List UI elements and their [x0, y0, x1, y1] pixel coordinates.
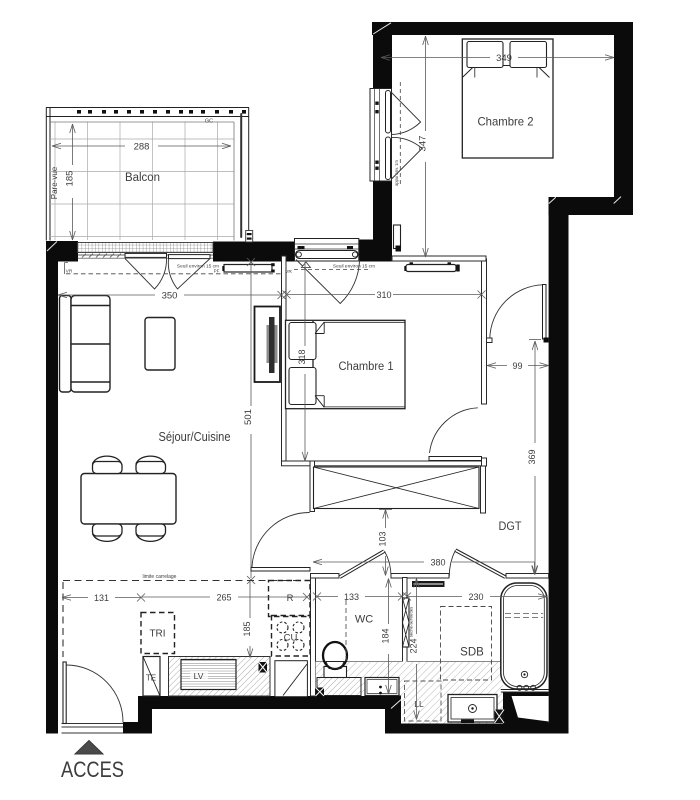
svg-text:sèche-serviettes: sèche-serviettes [409, 607, 414, 638]
svg-text:184: 184 [381, 628, 391, 643]
svg-text:LL: LL [414, 699, 424, 709]
svg-text:369: 369 [527, 449, 537, 464]
svg-text:SDB: SDB [460, 647, 484, 659]
svg-text:GC: GC [205, 119, 213, 125]
svg-text:347: 347 [418, 136, 429, 152]
svg-text:Séjour/Cuisine: Séjour/Cuisine [159, 429, 231, 444]
svg-text:99: 99 [512, 361, 522, 371]
svg-text:224: 224 [409, 638, 419, 653]
svg-text:CU: CU [284, 633, 298, 644]
svg-text:103: 103 [378, 531, 388, 546]
svg-text:PF: PF [214, 269, 220, 274]
svg-text:TE: TE [146, 674, 156, 683]
svg-text:185: 185 [242, 621, 252, 636]
svg-text:ACCES: ACCES [61, 757, 124, 782]
svg-text:318: 318 [297, 349, 307, 364]
svg-text:DGT: DGT [499, 521, 522, 533]
svg-text:Pare-vue: Pare-vue [50, 166, 59, 199]
svg-text:TRI: TRI [149, 629, 165, 640]
svg-text:WC: WC [355, 614, 373, 626]
svg-text:Chambre 2: Chambre 2 [478, 115, 534, 129]
svg-text:230: 230 [468, 592, 483, 602]
svg-text:310: 310 [376, 290, 391, 300]
svg-text:349: 349 [496, 53, 512, 64]
svg-text:VR: VR [285, 269, 292, 275]
svg-text:350: 350 [162, 291, 178, 302]
svg-text:R: R [287, 593, 294, 604]
svg-text:501: 501 [243, 409, 254, 425]
svg-text:185: 185 [65, 171, 76, 187]
svg-text:LV: LV [194, 671, 204, 681]
svg-text:Balcon: Balcon [125, 172, 160, 184]
svg-text:limite carrelage: limite carrelage [143, 574, 177, 580]
svg-text:265: 265 [216, 593, 231, 603]
svg-text:Seuil environ 15 cm: Seuil environ 15 cm [333, 264, 375, 270]
svg-text:appui env. 1m: appui env. 1m [394, 159, 399, 186]
svg-text:380: 380 [430, 558, 445, 568]
svg-text:Chambre 1: Chambre 1 [339, 361, 394, 373]
svg-text:288: 288 [134, 142, 150, 153]
svg-text:131: 131 [94, 593, 109, 603]
